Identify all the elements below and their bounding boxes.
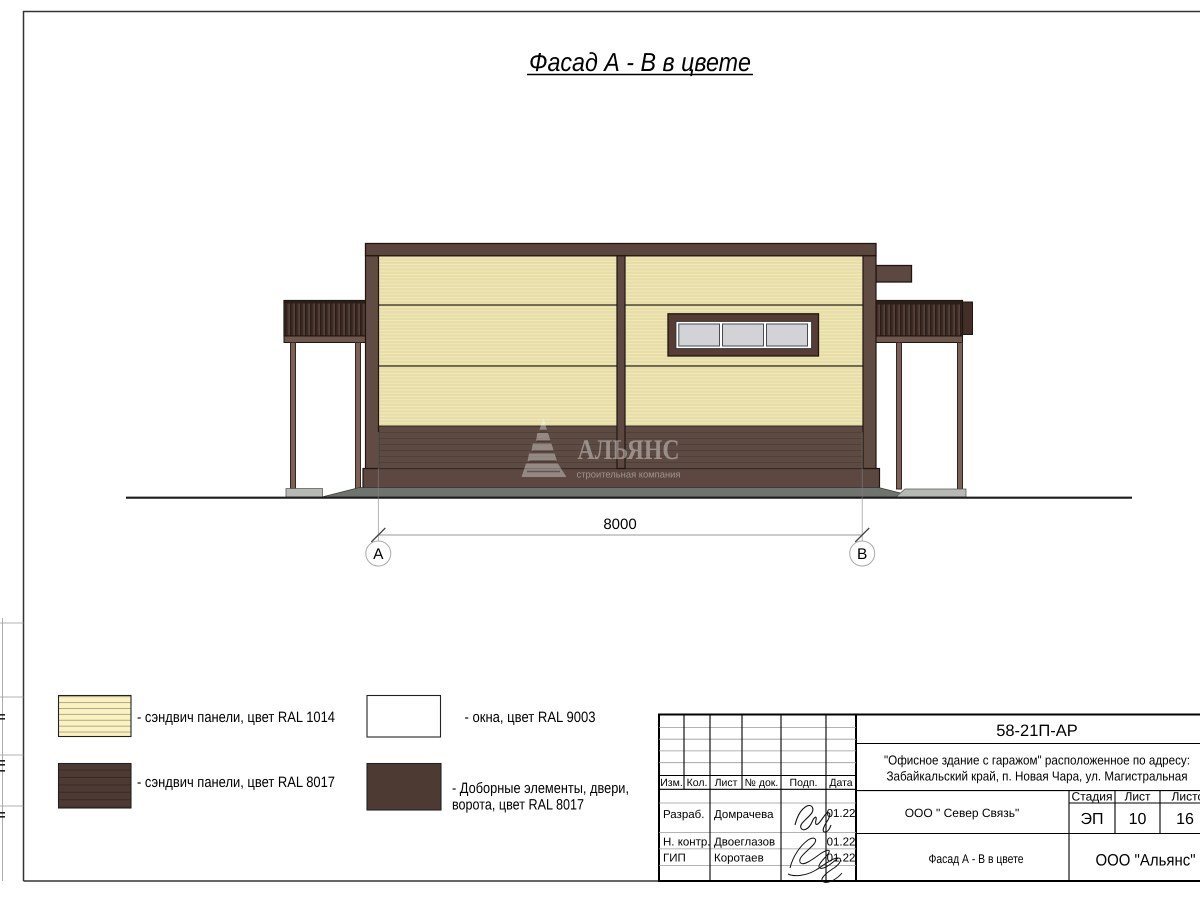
svg-text:АЛЬЯНС: АЛЬЯНС <box>578 435 680 466</box>
svg-text:Стадия: Стадия <box>1072 790 1113 804</box>
svg-text:ГИП: ГИП <box>663 853 686 865</box>
svg-text:Лист: Лист <box>715 777 738 789</box>
svg-text:Листов: Листов <box>1172 790 1200 804</box>
svg-text:- окна, цвет RAL 9003: - окна, цвет RAL 9003 <box>465 709 596 726</box>
svg-text:01.22: 01.22 <box>827 853 856 865</box>
svg-text:- сэндвич панели, цвет RAL 101: - сэндвич панели, цвет RAL 1014 <box>137 709 335 726</box>
svg-text:Домрачева: Домрачева <box>714 809 774 821</box>
svg-text:ЭП: ЭП <box>1081 811 1104 828</box>
svg-text:Двоеглазов: Двоеглазов <box>714 837 775 849</box>
svg-text:"Офисное здание с гаражом" рас: "Офисное здание с гаражом" расположенное… <box>884 753 1190 768</box>
svg-text:Забайкальский край, п. Новая Ч: Забайкальский край, п. Новая Чара, ул. М… <box>887 769 1188 784</box>
svg-text:Дата: Дата <box>829 777 852 789</box>
svg-text:Коротаев: Коротаев <box>714 853 764 865</box>
svg-text:ООО " Север Связь": ООО " Север Связь" <box>905 806 1020 820</box>
svg-text:16: 16 <box>1176 811 1194 828</box>
svg-text:Фасад А - В в цвете: Фасад А - В в цвете <box>929 852 1024 866</box>
svg-text:Лист: Лист <box>1124 790 1151 804</box>
svg-text:Подп.: Подп. <box>790 777 818 789</box>
svg-text:58-21П-АР: 58-21П-АР <box>996 722 1078 740</box>
svg-text:01.22: 01.22 <box>827 808 856 820</box>
svg-text:ворота, цвет RAL 8017: ворота, цвет RAL 8017 <box>452 797 584 814</box>
svg-text:Изм.: Изм. <box>660 777 683 789</box>
svg-text:В: В <box>857 546 867 563</box>
svg-text:10: 10 <box>1129 811 1147 828</box>
svg-text:ООО "Альянс": ООО "Альянс" <box>1096 852 1196 870</box>
svg-text:№ док.: № док. <box>745 777 779 789</box>
svg-text:Фасад А - В в цвете: Фасад А - В в цвете <box>529 47 751 77</box>
svg-text:- Доборные элементы, двери,: - Доборные элементы, двери, <box>452 780 629 797</box>
svg-text:строительная компания: строительная компания <box>577 470 681 481</box>
svg-text:Н. контр.: Н. контр. <box>663 837 710 849</box>
svg-text:Кол.: Кол. <box>687 777 708 789</box>
svg-text:А: А <box>373 546 384 563</box>
svg-text:01.22: 01.22 <box>827 837 856 849</box>
svg-text:8000: 8000 <box>603 516 636 533</box>
svg-text:Разраб.: Разраб. <box>663 809 704 821</box>
svg-text:- сэндвич панели, цвет RAL 801: - сэндвич панели, цвет RAL 8017 <box>137 774 335 791</box>
